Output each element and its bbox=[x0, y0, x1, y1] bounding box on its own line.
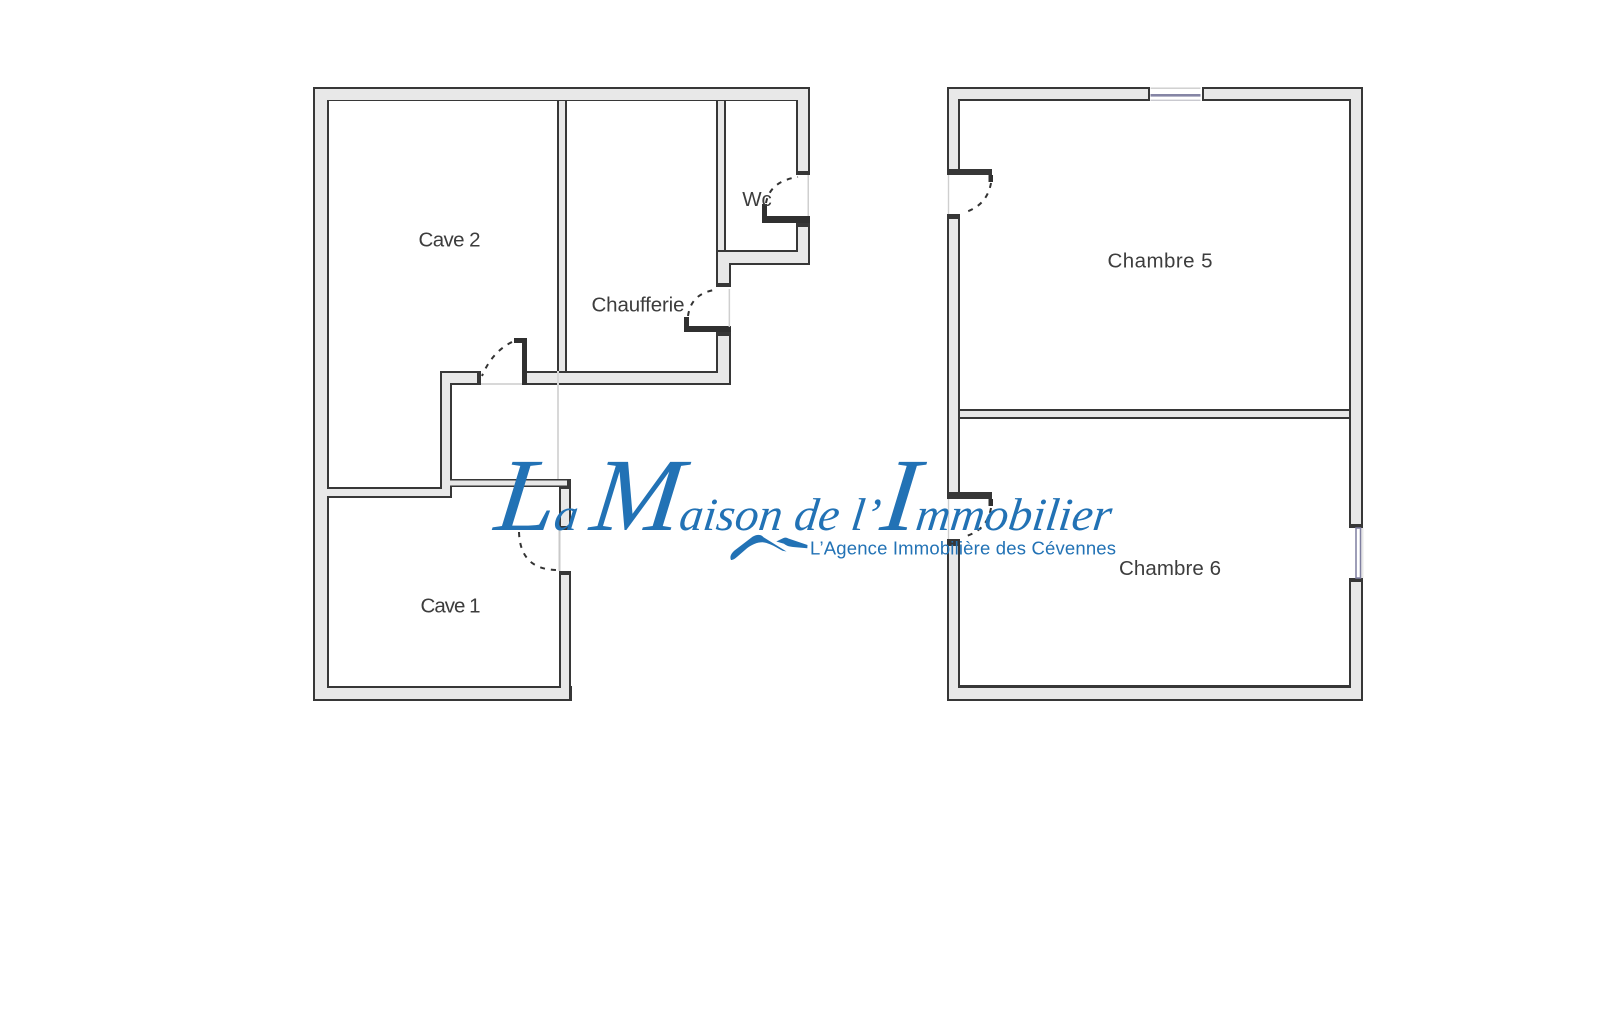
svg-text:Chaufferie: Chaufferie bbox=[592, 294, 685, 317]
svg-text:L’Agence Immobilière des Céven: L’Agence Immobilière des Cévennes bbox=[810, 538, 1116, 559]
svg-text:Cave 1: Cave 1 bbox=[421, 595, 481, 618]
svg-text:Chambre 6: Chambre 6 bbox=[1119, 557, 1221, 580]
svg-text:Cave 2: Cave 2 bbox=[419, 229, 481, 252]
svg-text:Chambre 5: Chambre 5 bbox=[1108, 250, 1213, 273]
svg-text:Wc: Wc bbox=[742, 188, 772, 211]
